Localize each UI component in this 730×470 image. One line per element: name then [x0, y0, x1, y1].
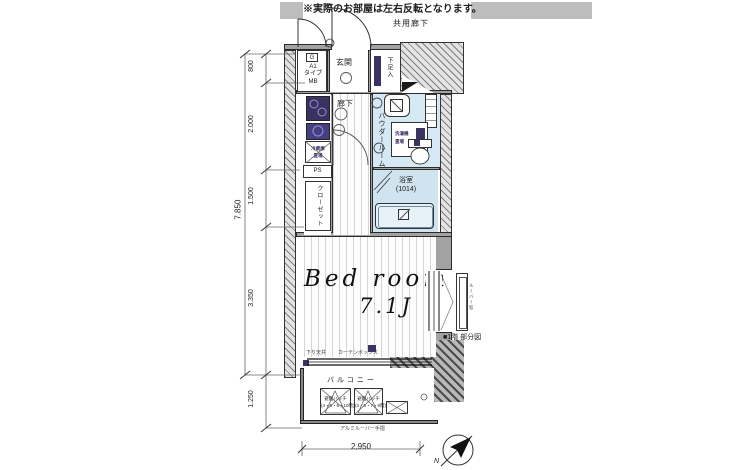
toilet-tank [408, 139, 432, 148]
escape-hatch-left-floors: (4・6・8・10階) [321, 403, 350, 408]
closet-label: クローゼット [315, 185, 322, 231]
toilet-controls [414, 140, 420, 146]
meter-a1: A1 [298, 64, 328, 71]
meter-mb: MB [298, 79, 328, 86]
door-stop [303, 360, 309, 366]
dim-seg-entry: 800 [248, 52, 256, 80]
mirror-note: ※実際のお部屋は左右反転となります。 [303, 1, 471, 19]
dim-overall-height: 7.850 [233, 192, 242, 228]
ps-label: PS [304, 168, 331, 175]
balcony-wall-bottom [300, 420, 438, 424]
left-wall [284, 50, 296, 378]
powder-room-label: パウダールーム [377, 112, 385, 172]
hallway-floor [333, 94, 370, 235]
fridge-label-1: 冷蔵庫 [306, 146, 330, 151]
shoe-door-leaf [374, 56, 381, 86]
dim-seg-balcony: 1.250 [248, 385, 256, 413]
entrance-floor [330, 50, 368, 92]
partial-window-detail [456, 273, 468, 331]
entrance-label: 玄関 [336, 58, 352, 67]
closet: クローゼット [305, 181, 331, 231]
bath-size-label: (1014) [381, 186, 431, 194]
ceiling-note-label: 下り天井 [306, 351, 326, 357]
escape-hatch-right: 避難ハッチ (3・5・7・9階) [354, 388, 383, 415]
sink-unit [306, 123, 330, 140]
dim-seg-kitchen: 2.000 [248, 110, 256, 138]
fridge-label-2: 置場 [306, 153, 330, 158]
right-wall-upper [440, 94, 452, 234]
washer-label-2: 置場 [395, 139, 404, 144]
meter-type: タイプ [298, 71, 328, 78]
meter-box: G A1 タイプ MB [297, 50, 327, 92]
washer-label-1: 洗濯機 [395, 131, 409, 136]
stove-unit [306, 96, 330, 121]
outdoor-unit-space [386, 401, 408, 414]
louver-window-label: ルーバー窓 [469, 283, 474, 323]
hose-bib [368, 345, 376, 352]
neighbor-block-top [400, 42, 464, 94]
hallway-label: 廊下 [337, 99, 353, 108]
floorplan-canvas: ※実際のお部屋は左右反転となります。 共用廊下 G A1 タイプ MB 玄関 下… [0, 0, 730, 470]
balcony-wall-left [300, 368, 304, 424]
escape-hatch-right-title: 避難ハッチ [355, 396, 382, 401]
compass-icon [441, 435, 473, 466]
escape-hatch-left-title: 避難ハッチ [321, 396, 350, 401]
balcony-label: バルコニー [327, 377, 377, 385]
compass-n-label: N [434, 458, 439, 466]
dim-seg-bedroom: 3.350 [248, 284, 256, 312]
pipe-space: PS [303, 165, 332, 178]
handrail-label: アルミルーバー手摺 [340, 427, 385, 433]
bath-label: 浴室 [381, 177, 431, 185]
escape-hatch-right-floors: (3・5・7・9階) [355, 403, 382, 408]
bath-drain [398, 209, 409, 220]
washbasin-bowl [390, 99, 403, 112]
partial-plan-label: ■1階 部分図 [443, 334, 481, 342]
bedroom-size: 7.1J [320, 294, 452, 318]
escape-hatch-left: 避難ハッチ (4・6・8・10階) [320, 388, 351, 415]
shoe-box-label: 下足入 [385, 57, 392, 89]
meter-g-box: G [306, 53, 318, 62]
dim-seg-bath: 1.500 [248, 182, 256, 210]
partial-window-inner [459, 277, 467, 329]
bedroom-name: Bed room [304, 266, 436, 292]
fridge-space: 冷蔵庫 置場 [305, 141, 331, 163]
corridor-label: 共用廊下 [393, 19, 429, 28]
dim-width: 2,950 [341, 442, 381, 451]
right-wall-mid [434, 234, 452, 270]
